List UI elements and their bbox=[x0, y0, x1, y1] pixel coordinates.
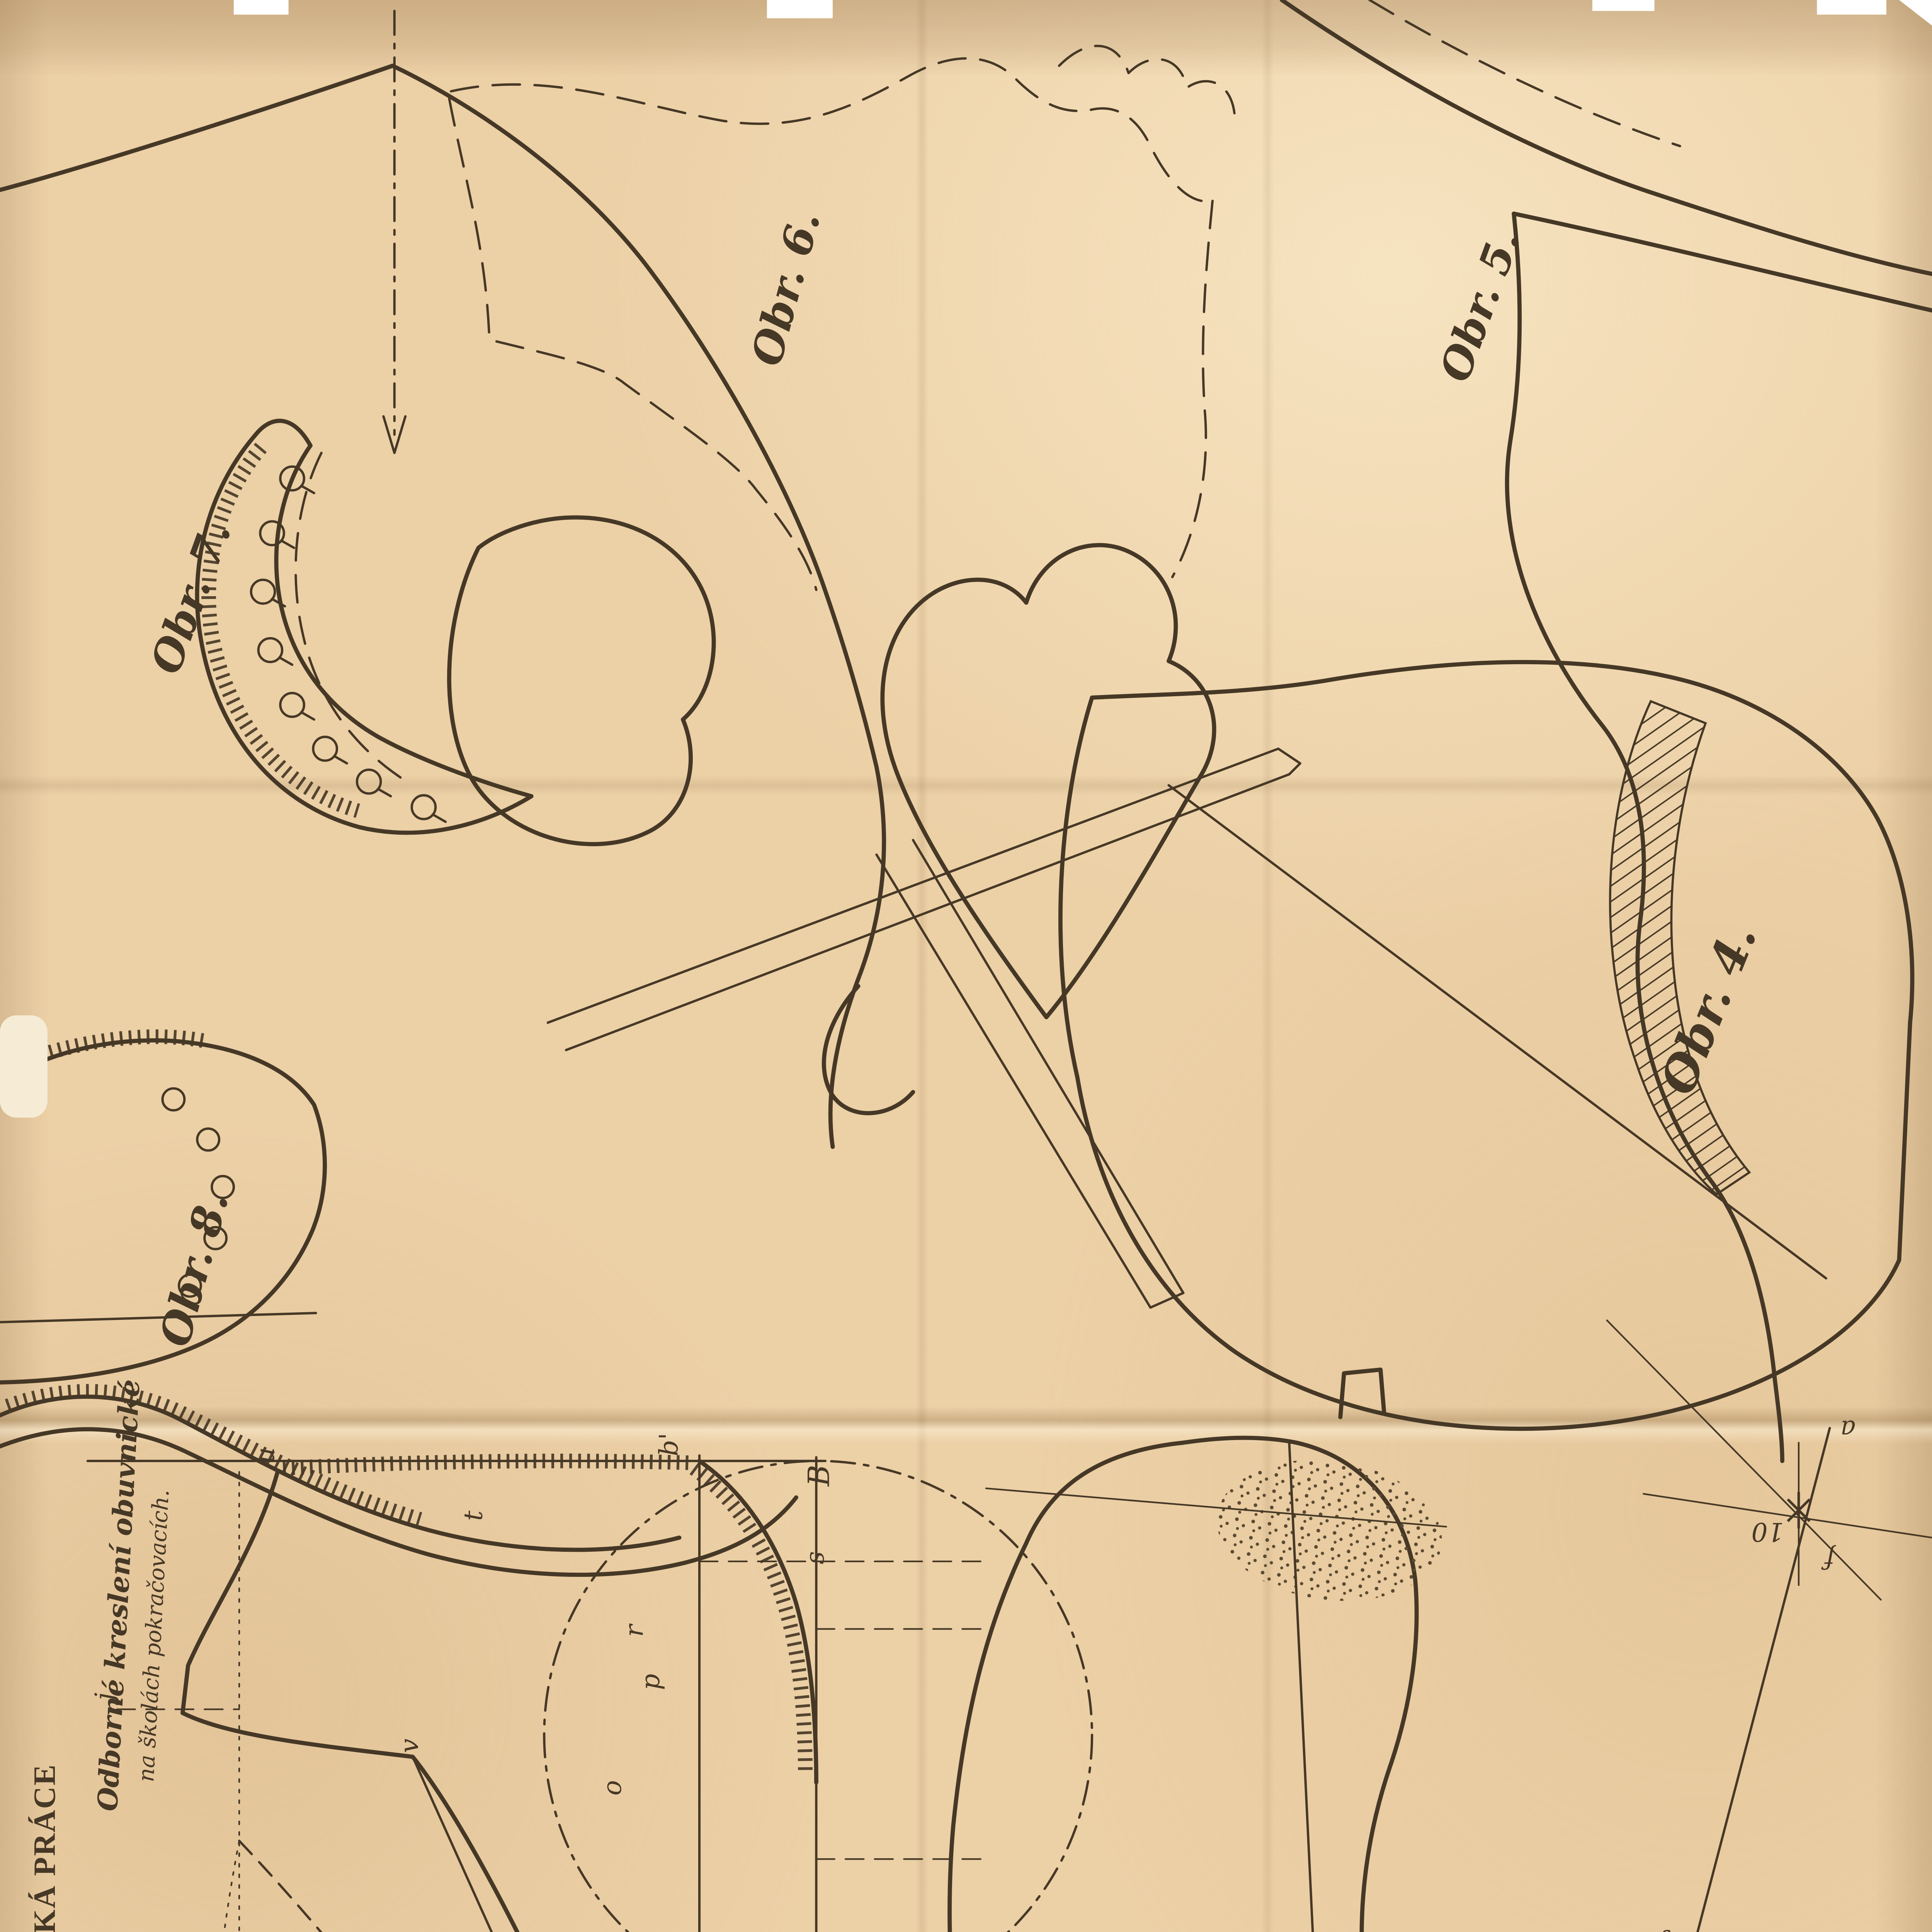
point-label: b' bbox=[654, 1433, 684, 1456]
torn-edge bbox=[1817, 0, 1886, 15]
point-label: a bbox=[1840, 1415, 1855, 1444]
obr3-piece bbox=[928, 1438, 1516, 1932]
obr4-piece bbox=[1060, 662, 1912, 1429]
obraz1-drawing bbox=[88, 1456, 1092, 1932]
obr5-piece bbox=[1282, 0, 1932, 1461]
obr8-label: Obr. 8. bbox=[150, 1187, 238, 1351]
point-label: s bbox=[800, 1551, 830, 1564]
point-label: t bbox=[459, 1510, 488, 1521]
torn-edge bbox=[1592, 0, 1655, 11]
heading-line2: na školách pokračovacích. bbox=[133, 1489, 174, 1782]
obr7-piece bbox=[197, 421, 531, 833]
obr7-label: Obr. 7. bbox=[141, 515, 241, 680]
point-label: B bbox=[802, 1465, 836, 1487]
point-label: r bbox=[619, 1623, 649, 1637]
point-label: f bbox=[1821, 1544, 1837, 1574]
spine-title: ČESKÝ OBUVNÍK čís. 9. vzorková příloha o… bbox=[27, 1764, 62, 1932]
point-label: p bbox=[636, 1674, 665, 1690]
obr2-letters: a10fjueo725 cm.110°pcgabsab bbox=[1418, 1415, 1855, 1932]
obr6-label: Obr. 6. bbox=[742, 206, 830, 371]
parent-journal-name: ČESKÁ PRÁCE bbox=[27, 1764, 62, 1932]
torn-edge bbox=[767, 0, 833, 18]
point-label: o bbox=[597, 1780, 627, 1796]
point-label: 10 bbox=[1752, 1517, 1784, 1547]
point-label: v bbox=[395, 1739, 424, 1753]
obraz1-letters: utb'Bjvrposymi'h'j'f'e'd'ihjfedckaa'A bbox=[90, 1433, 837, 1932]
pattern-sheet-svg: Obraz 1. Obr. 2. Obr. 3. Obr. 4. Obr. 5.… bbox=[0, 0, 1932, 1932]
point-label: j bbox=[1658, 1930, 1671, 1932]
obr5-label: Obr. 5. bbox=[1430, 223, 1530, 388]
torn-corner bbox=[1899, 0, 1932, 26]
center-pieces bbox=[449, 517, 1300, 1308]
point-label: u bbox=[250, 1447, 280, 1464]
pattern-sheet: Obraz 1. Obr. 2. Obr. 3. Obr. 4. Obr. 5.… bbox=[0, 0, 1932, 1932]
torn-patch bbox=[0, 1015, 48, 1118]
torn-edge bbox=[234, 0, 289, 15]
